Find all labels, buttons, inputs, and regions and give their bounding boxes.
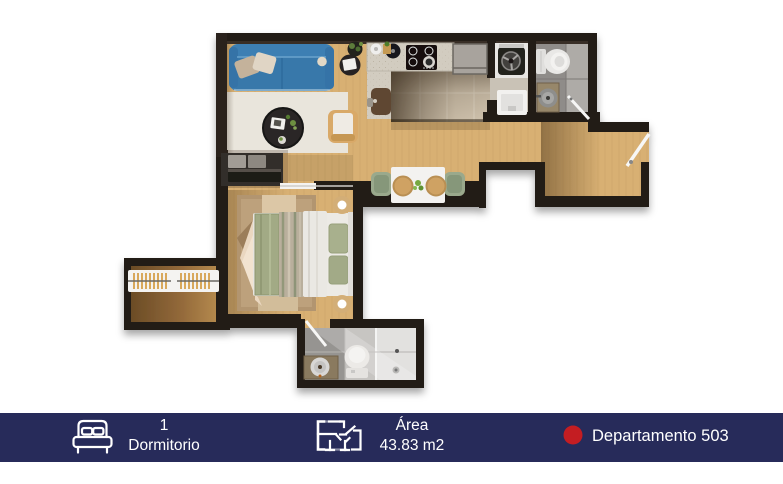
svg-text:Dormitorio: Dormitorio xyxy=(128,437,199,454)
svg-text:Área: Área xyxy=(396,417,429,434)
svg-text:Departamento 503: Departamento 503 xyxy=(592,427,729,445)
svg-text:43.83 m2: 43.83 m2 xyxy=(380,437,445,454)
svg-text:1: 1 xyxy=(160,417,169,434)
